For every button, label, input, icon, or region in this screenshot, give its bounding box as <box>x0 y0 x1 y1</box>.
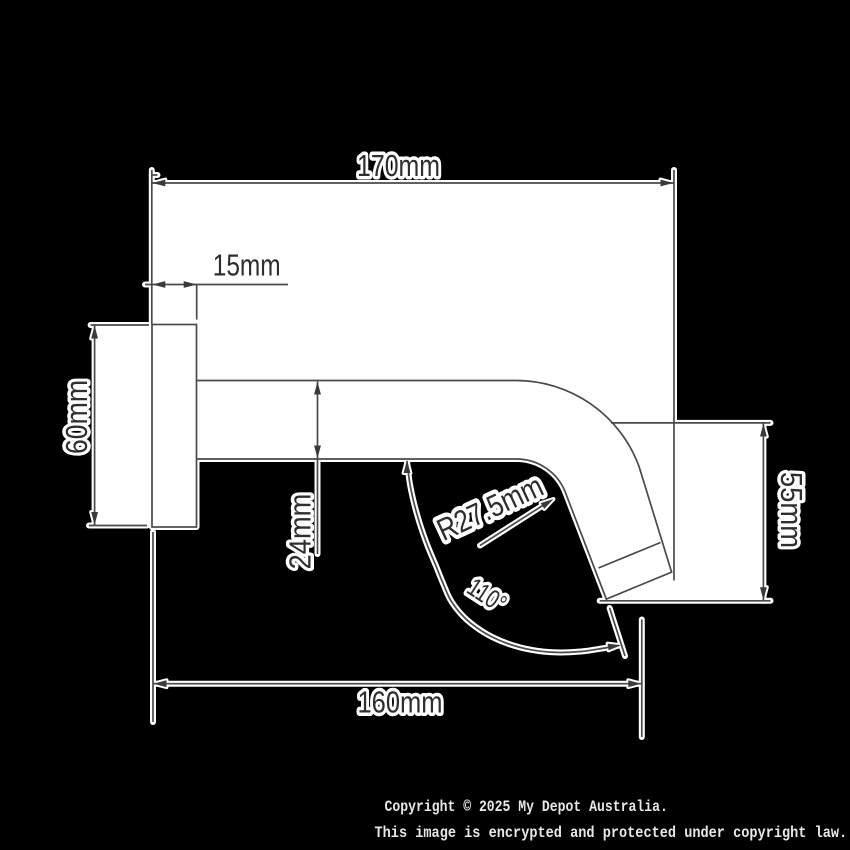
svg-text:170mm: 170mm <box>357 148 440 182</box>
svg-text:160mm: 160mm <box>357 685 442 720</box>
svg-text:60mm: 60mm <box>60 380 94 454</box>
svg-text:Copyright © 2025 My Depot Aust: Copyright © 2025 My Depot Australia. <box>385 799 668 816</box>
svg-text:This image is encrypted and pr: This image is encrypted and protected un… <box>375 825 848 842</box>
svg-text:24mm: 24mm <box>284 494 318 570</box>
svg-text:55mm: 55mm <box>774 472 808 548</box>
svg-text:15mm: 15mm <box>213 248 281 282</box>
